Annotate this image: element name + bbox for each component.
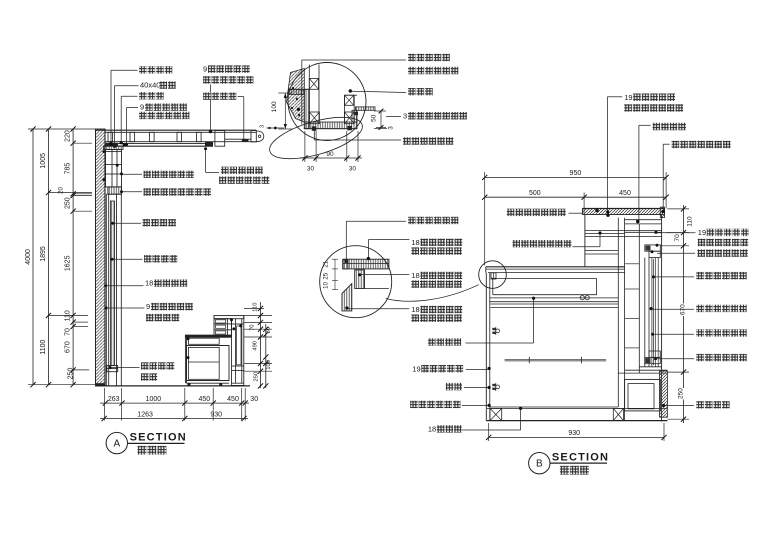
svg-text:785: 785 xyxy=(65,163,72,175)
svg-text:450: 450 xyxy=(198,396,210,403)
svg-text:930: 930 xyxy=(210,411,222,418)
svg-text:80: 80 xyxy=(266,327,272,333)
svg-text:9: 9 xyxy=(146,302,150,311)
svg-text:70: 70 xyxy=(674,234,681,242)
svg-text:30: 30 xyxy=(307,166,315,173)
svg-text:20: 20 xyxy=(59,187,65,194)
svg-text:30: 30 xyxy=(349,166,357,173)
svg-text:490: 490 xyxy=(253,341,259,351)
svg-text:9: 9 xyxy=(140,103,144,112)
svg-text:3: 3 xyxy=(260,125,266,128)
svg-text:930: 930 xyxy=(568,430,580,437)
svg-text:10: 10 xyxy=(324,282,330,289)
svg-text:670: 670 xyxy=(65,341,72,353)
svg-text:110: 110 xyxy=(65,310,72,321)
svg-text:250: 250 xyxy=(254,372,260,382)
svg-text:100: 100 xyxy=(271,101,278,112)
svg-text:220: 220 xyxy=(65,130,72,142)
svg-text:SECTION: SECTION xyxy=(130,432,187,444)
svg-text:18: 18 xyxy=(411,305,419,314)
svg-text:70: 70 xyxy=(250,324,256,330)
svg-text:1263: 1263 xyxy=(137,411,153,418)
svg-text:263: 263 xyxy=(108,396,120,403)
svg-text:18: 18 xyxy=(411,271,419,280)
svg-text:1100: 1100 xyxy=(40,339,47,354)
svg-text:3: 3 xyxy=(403,111,407,120)
svg-text:30: 30 xyxy=(250,396,258,403)
svg-text:1625: 1625 xyxy=(65,255,72,271)
svg-text:19: 19 xyxy=(624,93,632,102)
svg-text:A: A xyxy=(113,439,120,450)
svg-text:450: 450 xyxy=(227,396,239,403)
svg-text:110: 110 xyxy=(253,303,259,312)
svg-text:18: 18 xyxy=(145,279,153,288)
svg-text:18: 18 xyxy=(428,425,436,434)
svg-text:50: 50 xyxy=(371,114,378,122)
svg-text:100: 100 xyxy=(266,360,272,370)
svg-text:19: 19 xyxy=(698,228,706,237)
svg-text:70: 70 xyxy=(65,328,72,336)
svg-text:1000: 1000 xyxy=(146,396,162,403)
svg-text:500: 500 xyxy=(529,190,541,197)
svg-text:250: 250 xyxy=(68,368,75,380)
svg-text:950: 950 xyxy=(570,170,582,177)
svg-text:1895: 1895 xyxy=(40,246,47,262)
svg-text:4000: 4000 xyxy=(25,249,32,265)
svg-text:SECTION: SECTION xyxy=(552,452,609,464)
svg-text:450: 450 xyxy=(619,190,631,197)
svg-text:250: 250 xyxy=(678,388,685,399)
svg-text:1005: 1005 xyxy=(40,153,47,169)
svg-text:18: 18 xyxy=(411,238,419,247)
svg-text:19: 19 xyxy=(412,364,420,373)
svg-text:250: 250 xyxy=(65,197,72,209)
svg-text:B: B xyxy=(536,459,543,470)
svg-text:25: 25 xyxy=(324,272,330,279)
svg-text:9: 9 xyxy=(203,65,207,74)
svg-text:40x40: 40x40 xyxy=(140,81,160,90)
svg-text:21: 21 xyxy=(324,260,330,267)
svg-text:110: 110 xyxy=(687,216,694,227)
